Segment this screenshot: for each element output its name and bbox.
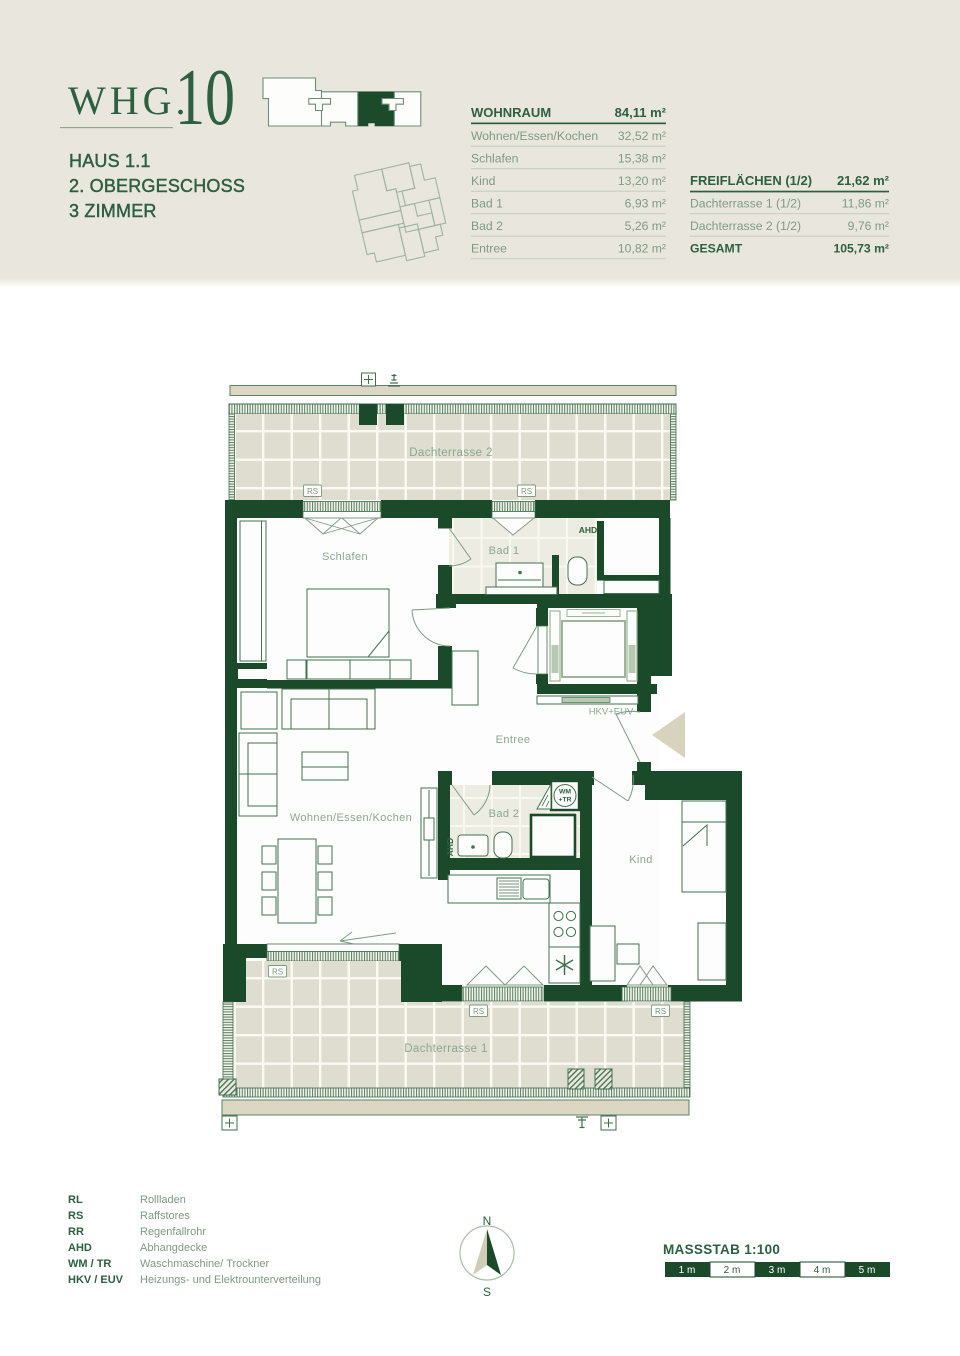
svg-text:HKV / EUV: HKV / EUV	[68, 1274, 124, 1286]
svg-text:Dachterrasse 1: Dachterrasse 1	[404, 1043, 488, 1055]
svg-text:21,62 m²: 21,62 m²	[837, 173, 890, 188]
svg-text:N: N	[483, 1214, 492, 1228]
svg-text:RS: RS	[272, 968, 283, 977]
svg-text:RR: RR	[68, 1226, 84, 1238]
svg-text:RS: RS	[473, 1007, 484, 1016]
svg-text:RS: RS	[521, 487, 532, 496]
svg-text:6,93 m²: 6,93 m²	[625, 197, 666, 211]
svg-text:RS: RS	[68, 1210, 83, 1222]
svg-text:3 m: 3 m	[769, 1265, 786, 1276]
svg-text:GESAMT: GESAMT	[690, 242, 743, 256]
svg-text:WM / TR: WM / TR	[68, 1258, 111, 1270]
svg-text:Schlafen: Schlafen	[471, 152, 518, 166]
svg-text:Bad 2: Bad 2	[489, 808, 520, 820]
svg-text:Bad 1: Bad 1	[471, 197, 503, 211]
svg-text:MASSSTAB 1:100: MASSSTAB 1:100	[663, 1242, 780, 1257]
svg-text:10,82 m²: 10,82 m²	[618, 242, 666, 256]
svg-text:105,73 m²: 105,73 m²	[833, 242, 889, 256]
svg-text:RL: RL	[68, 1194, 83, 1206]
svg-text:Dachterrasse 2: Dachterrasse 2	[409, 447, 493, 459]
svg-text:Raffstores: Raffstores	[140, 1210, 190, 1222]
svg-text:RS: RS	[307, 487, 318, 496]
svg-text:Waschmaschine/ Trockner: Waschmaschine/ Trockner	[140, 1258, 270, 1270]
svg-text:RS: RS	[655, 1007, 666, 1016]
svg-text:Dachterrasse 2 (1/2): Dachterrasse 2 (1/2)	[690, 219, 801, 233]
svg-text:9,76 m²: 9,76 m²	[848, 219, 889, 233]
svg-text:S: S	[483, 1285, 491, 1299]
svg-text:AHD: AHD	[68, 1242, 92, 1254]
svg-text:FREIFLÄCHEN (1/2): FREIFLÄCHEN (1/2)	[690, 173, 812, 188]
svg-text:2 m: 2 m	[724, 1265, 741, 1276]
svg-text:1 m: 1 m	[679, 1265, 696, 1276]
svg-text:HAUS 1.1: HAUS 1.1	[69, 151, 151, 171]
svg-text:4 m: 4 m	[814, 1265, 831, 1276]
svg-text:3 ZIMMER: 3 ZIMMER	[69, 201, 157, 221]
svg-text:10: 10	[175, 54, 235, 142]
svg-text:2. OBERGESCHOSS: 2. OBERGESCHOSS	[69, 176, 245, 196]
svg-text:Bad 1: Bad 1	[489, 545, 520, 557]
svg-text:AHD: AHD	[445, 838, 455, 856]
svg-text:Wohnen/Essen/Kochen: Wohnen/Essen/Kochen	[471, 129, 598, 143]
svg-text:Kind: Kind	[471, 174, 495, 188]
svg-text:32,52 m²: 32,52 m²	[618, 129, 666, 143]
svg-text:Rollladen: Rollladen	[140, 1194, 186, 1206]
svg-text:Regenfallrohr: Regenfallrohr	[140, 1226, 206, 1238]
svg-text:WOHNRAUM: WOHNRAUM	[471, 105, 551, 120]
svg-text:Bad 2: Bad 2	[471, 219, 503, 233]
svg-text:13,20 m²: 13,20 m²	[618, 174, 666, 188]
svg-text:AHD: AHD	[579, 525, 597, 535]
svg-text:Schlafen: Schlafen	[322, 551, 368, 563]
svg-text:5 m: 5 m	[859, 1265, 876, 1276]
svg-text:Heizungs- und Elektrountervert: Heizungs- und Elektrounterverteilung	[140, 1274, 321, 1286]
svg-text:11,86 m²: 11,86 m²	[842, 197, 889, 211]
svg-text:Dachterrasse 1 (1/2): Dachterrasse 1 (1/2)	[690, 197, 801, 211]
svg-text:Kind: Kind	[629, 854, 653, 866]
svg-text:Wohnen/Essen/Kochen: Wohnen/Essen/Kochen	[290, 812, 412, 824]
svg-text:WHG.: WHG.	[68, 78, 190, 123]
svg-text:5,26 m²: 5,26 m²	[625, 219, 666, 233]
svg-text:WM: WM	[559, 789, 571, 796]
svg-text:+TR: +TR	[558, 797, 571, 804]
svg-text:Entree: Entree	[496, 734, 531, 746]
svg-text:15,38 m²: 15,38 m²	[618, 152, 666, 166]
svg-text:Entree: Entree	[471, 242, 507, 256]
svg-text:Abhangdecke: Abhangdecke	[140, 1242, 207, 1254]
svg-text:84,11 m²: 84,11 m²	[615, 105, 667, 120]
